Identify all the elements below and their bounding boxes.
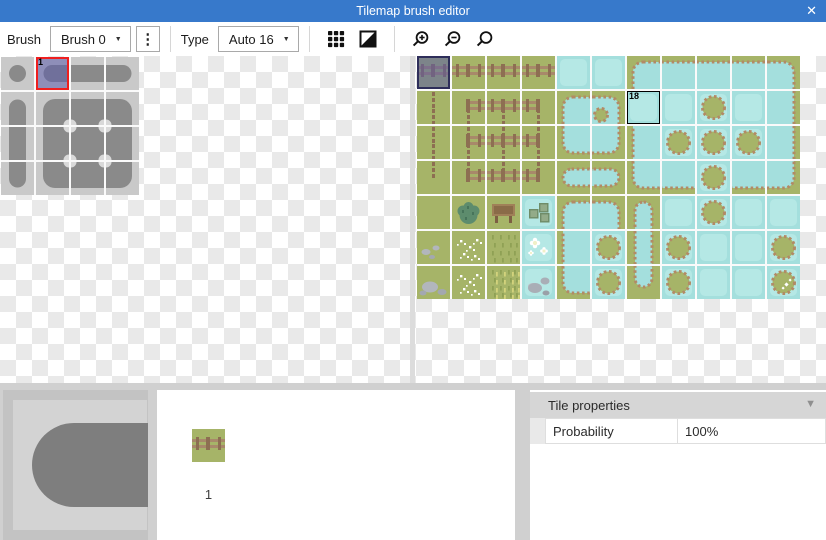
- tileset-tile-1-10[interactable]: [767, 91, 800, 124]
- window-title: Tilemap brush editor: [356, 4, 469, 18]
- tileset-tile-3-5[interactable]: [592, 161, 625, 194]
- brush-tile-1-1[interactable]: [36, 92, 69, 125]
- collapse-triangle-icon: ▼: [805, 398, 816, 410]
- tilemap-brush-editor-window: Tilemap brush editor ✕ Brush Brush 0 ▼ ⋮…: [0, 0, 826, 540]
- tileset-tile-0-8[interactable]: [697, 56, 730, 89]
- brush-tile-1-3[interactable]: [106, 92, 139, 125]
- tileset-tile-2-2[interactable]: [487, 126, 520, 159]
- tileset-tile-3-2[interactable]: [487, 161, 520, 194]
- property-row: Probability 100%: [530, 418, 826, 444]
- tileset-tile-6-2[interactable]: [487, 266, 520, 299]
- tileset-tile-4-3[interactable]: [522, 196, 555, 229]
- tile-properties-header[interactable]: Tile properties ▼: [530, 392, 826, 418]
- tileset-tile-1-5[interactable]: [592, 91, 625, 124]
- tileset-tile-0-6[interactable]: [627, 56, 660, 89]
- tileset-tile-6-0[interactable]: [417, 266, 450, 299]
- tileset-tile-4-5[interactable]: [592, 196, 625, 229]
- brush-tile-3-3[interactable]: [106, 162, 139, 195]
- toolbar-separator: [309, 26, 310, 52]
- tileset-tile-2-8[interactable]: [697, 126, 730, 159]
- tileset-tile-0-7[interactable]: [662, 56, 695, 89]
- type-select-value: Auto 16: [229, 32, 274, 47]
- tileset-tile-3-10[interactable]: [767, 161, 800, 194]
- tileset-tile-1-1[interactable]: [452, 91, 485, 124]
- tileset-tile-2-5[interactable]: [592, 126, 625, 159]
- tileset-tile-6-10[interactable]: [767, 266, 800, 299]
- brush-tile-0-2[interactable]: [71, 57, 104, 90]
- tileset-tile-3-3[interactable]: [522, 161, 555, 194]
- tileset-tile-6-7[interactable]: [662, 266, 695, 299]
- brush-tile-0-3[interactable]: [106, 57, 139, 90]
- tileset-tile-4-4[interactable]: [557, 196, 590, 229]
- tile-index-label: 18: [629, 92, 639, 101]
- tileset-tile-6-3[interactable]: [522, 266, 555, 299]
- vertical-splitter[interactable]: [410, 56, 415, 383]
- tileset-tile-1-2[interactable]: [487, 91, 520, 124]
- tileset-tile-0-0[interactable]: [417, 56, 450, 89]
- tileset-tile-5-8[interactable]: [697, 231, 730, 264]
- tileset-tile-6-9[interactable]: [732, 266, 765, 299]
- brush-tile-0-0[interactable]: [1, 57, 34, 90]
- brush-tile-1-0[interactable]: [1, 92, 34, 125]
- tileset-tile-2-0[interactable]: [417, 126, 450, 159]
- tile-properties-title: Tile properties: [548, 398, 630, 413]
- tileset-tile-5-5[interactable]: [592, 231, 625, 264]
- tileset-tile-2-9[interactable]: [732, 126, 765, 159]
- preview-shape: [32, 423, 148, 507]
- tileset-tile-0-4[interactable]: [557, 56, 590, 89]
- titlebar[interactable]: Tilemap brush editor ✕: [0, 0, 826, 22]
- brush-label: Brush: [7, 32, 41, 47]
- tileset-tile-5-10[interactable]: [767, 231, 800, 264]
- tileset-tile-4-8[interactable]: [697, 196, 730, 229]
- tileset-tile-0-9[interactable]: [732, 56, 765, 89]
- chevron-down-icon: ▼: [115, 36, 122, 43]
- tileset-tile-3-4[interactable]: [557, 161, 590, 194]
- tileset-tile-4-2[interactable]: [487, 196, 520, 229]
- zoom-out-icon[interactable]: [440, 26, 466, 52]
- type-select[interactable]: Auto 16 ▼: [218, 26, 299, 52]
- tileset-tile-2-3[interactable]: [522, 126, 555, 159]
- tileset-tile-3-1[interactable]: [452, 161, 485, 194]
- brush-tile-3-0[interactable]: [1, 162, 34, 195]
- tileset-tile-5-9[interactable]: [732, 231, 765, 264]
- tileset-tile-5-0[interactable]: [417, 231, 450, 264]
- tileset-tile-2-10[interactable]: [767, 126, 800, 159]
- tileset-tile-5-1[interactable]: [452, 231, 485, 264]
- tile-properties-panel: Tile properties ▼ Probability 100%: [530, 390, 826, 540]
- editor-canvas-area: 1 18: [0, 56, 826, 383]
- brush-tiles-list: 1: [157, 390, 515, 540]
- tileset-tile-6-1[interactable]: [452, 266, 485, 299]
- chevron-down-icon: ▼: [283, 36, 290, 43]
- bottom-panels: 1 Tile properties ▼ Probability 100%: [0, 383, 826, 540]
- tileset-tile-4-6[interactable]: [627, 196, 660, 229]
- tileset-tile-5-2[interactable]: [487, 231, 520, 264]
- brush-tile-0-1[interactable]: 1: [36, 57, 69, 90]
- tileset-tile-1-4[interactable]: [557, 91, 590, 124]
- tileset-tile-1-9[interactable]: [732, 91, 765, 124]
- brush-tile-2-2[interactable]: [71, 127, 104, 160]
- close-icon[interactable]: ✕: [806, 0, 817, 22]
- grid-view-icon[interactable]: [323, 26, 349, 52]
- tileset-tile-2-7[interactable]: [662, 126, 695, 159]
- brush-menu-button[interactable]: ⋮: [136, 26, 160, 52]
- property-name: Probability: [545, 418, 677, 444]
- tileset-tile-0-2[interactable]: [487, 56, 520, 89]
- tileset-tile-4-7[interactable]: [662, 196, 695, 229]
- tileset-tile-5-4[interactable]: [557, 231, 590, 264]
- toolbar: Brush Brush 0 ▼ ⋮ Type Auto 16 ▼: [0, 22, 826, 56]
- tileset-tile-4-9[interactable]: [732, 196, 765, 229]
- kebab-menu-icon: ⋮: [140, 30, 155, 48]
- list-item[interactable]: 1: [192, 429, 225, 502]
- zoom-in-icon[interactable]: [408, 26, 434, 52]
- tile-index-label: 1: [38, 58, 43, 67]
- toolbar-separator: [170, 26, 171, 52]
- brush-tile-1-2[interactable]: [71, 92, 104, 125]
- tileset-tile-0-10[interactable]: [767, 56, 800, 89]
- tileset-tile-0-3[interactable]: [522, 56, 555, 89]
- tileset-tile-4-1[interactable]: [452, 196, 485, 229]
- tileset-tile-3-8[interactable]: [697, 161, 730, 194]
- tileset-tile-6-8[interactable]: [697, 266, 730, 299]
- tileset-tile-6-6[interactable]: [627, 266, 660, 299]
- tileset-tile-0-1[interactable]: [452, 56, 485, 89]
- tileset-tile-2-1[interactable]: [452, 126, 485, 159]
- tileset-tile-4-0[interactable]: [417, 196, 450, 229]
- tileset-tile-1-7[interactable]: [662, 91, 695, 124]
- brush-select-value: Brush 0: [61, 32, 106, 47]
- tileset-tile-2-6[interactable]: [627, 126, 660, 159]
- selection-border: [417, 56, 450, 89]
- tile-thumbnail[interactable]: [192, 429, 225, 462]
- tileset-tile-6-5[interactable]: [592, 266, 625, 299]
- probability-value[interactable]: 100%: [677, 418, 826, 444]
- tileset-tile-6-4[interactable]: [557, 266, 590, 299]
- transparency-icon[interactable]: [355, 26, 381, 52]
- tileset-tile-1-3[interactable]: [522, 91, 555, 124]
- zoom-reset-icon[interactable]: [472, 26, 498, 52]
- brush-tile-preview: [3, 390, 148, 540]
- tileset-tile-0-5[interactable]: [592, 56, 625, 89]
- brush-tile-2-3[interactable]: [106, 127, 139, 160]
- tileset-tile-3-0[interactable]: [417, 161, 450, 194]
- tileset-tile-1-0[interactable]: [417, 91, 450, 124]
- tileset-tile-5-6[interactable]: [627, 231, 660, 264]
- tileset-tile-3-9[interactable]: [732, 161, 765, 194]
- brush-tile-3-2[interactable]: [71, 162, 104, 195]
- tileset-tile-3-7[interactable]: [662, 161, 695, 194]
- tileset-tile-3-6[interactable]: [627, 161, 660, 194]
- brush-select[interactable]: Brush 0 ▼: [50, 26, 131, 52]
- brush-tile-3-1[interactable]: [36, 162, 69, 195]
- brush-pattern-grid: 1: [1, 57, 139, 195]
- tileset-tile-1-8[interactable]: [697, 91, 730, 124]
- tileset-tile-1-6[interactable]: 18: [627, 91, 660, 124]
- tileset-tile-5-7[interactable]: [662, 231, 695, 264]
- tileset-tile-4-10[interactable]: [767, 196, 800, 229]
- brush-tile-2-0[interactable]: [1, 127, 34, 160]
- toolbar-separator: [394, 26, 395, 52]
- brush-tile-2-1[interactable]: [36, 127, 69, 160]
- type-label: Type: [181, 32, 209, 47]
- tileset-tile-2-4[interactable]: [557, 126, 590, 159]
- tileset-tile-5-3[interactable]: [522, 231, 555, 264]
- row-gutter: [530, 418, 545, 444]
- tile-thumbnail-label: 1: [192, 487, 225, 502]
- tileset-grid: 18: [417, 56, 800, 299]
